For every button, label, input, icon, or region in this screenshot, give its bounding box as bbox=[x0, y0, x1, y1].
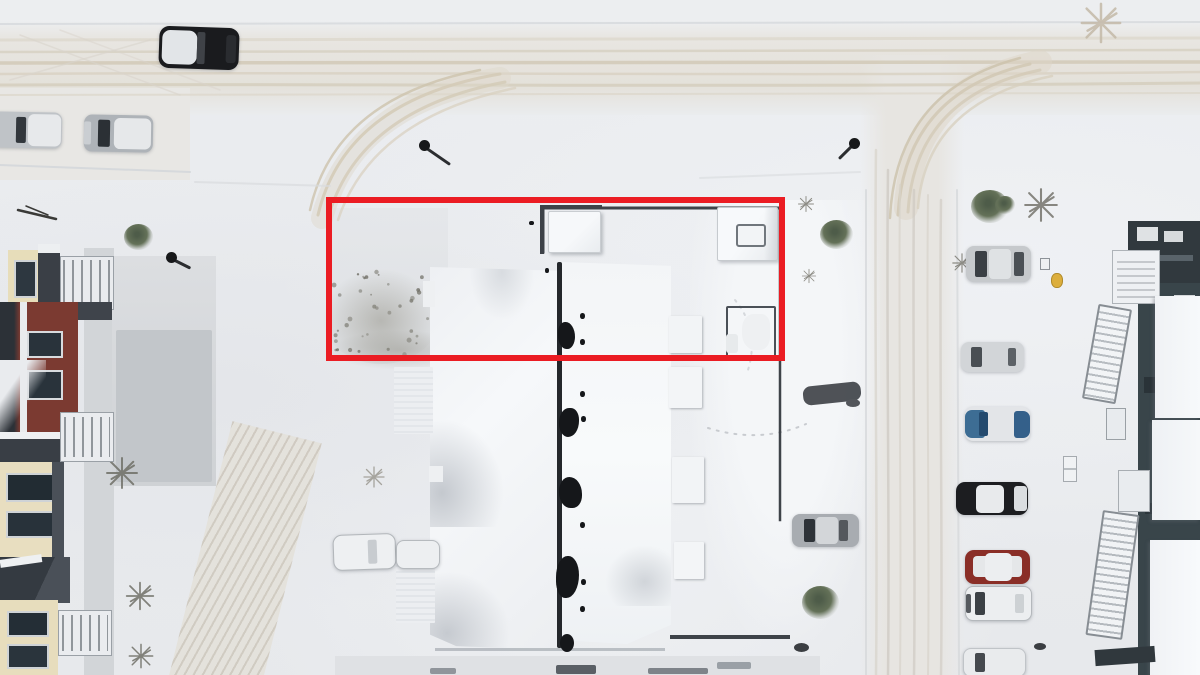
lh-snow-roof-peak bbox=[0, 360, 46, 434]
roof-drift-shadow bbox=[430, 566, 515, 650]
roof-vent bbox=[580, 606, 585, 612]
car-snowcovered-1-detail bbox=[368, 539, 377, 563]
porch-roof-3 bbox=[672, 457, 704, 503]
porch-roof-4 bbox=[674, 542, 704, 579]
car-parked-right-7 bbox=[963, 648, 1026, 675]
suv-dark-top-road bbox=[158, 26, 239, 71]
aerial-photo-scene bbox=[0, 0, 1200, 675]
car-parked-left-2-detail bbox=[98, 120, 111, 147]
porch-roof-2 bbox=[669, 367, 702, 408]
fire-hydrant bbox=[1051, 273, 1063, 288]
car-parked-right-4-black bbox=[956, 482, 1028, 515]
suv-dark-top-road-detail bbox=[162, 30, 198, 65]
bare-shrub bbox=[801, 268, 817, 284]
car-parked-right-6-white-detail bbox=[966, 594, 971, 612]
ridge-blotch bbox=[559, 477, 582, 508]
car-parked-left-2 bbox=[84, 114, 154, 152]
car-parked-right-4-black-detail bbox=[976, 485, 1003, 513]
car-parked-right-6-white bbox=[965, 586, 1032, 621]
car-parked-right-3-blue-detail bbox=[979, 412, 988, 435]
roof-vent bbox=[580, 522, 585, 528]
car-parked-right-3-blue-detail bbox=[1014, 411, 1030, 438]
car-parked-left-1-detail bbox=[28, 114, 61, 146]
property-outline-annotation bbox=[326, 197, 785, 361]
post-box bbox=[1040, 258, 1050, 270]
lh-wall-cream-3 bbox=[0, 600, 58, 675]
car-gray-mid-detail bbox=[804, 519, 815, 543]
roof-vent bbox=[581, 579, 586, 585]
lamp-head bbox=[849, 138, 860, 149]
car-parked-right-6-white-detail bbox=[975, 592, 985, 614]
lh-roof-diag bbox=[0, 557, 70, 603]
lh-roof-strip-1-detail bbox=[38, 244, 60, 253]
car-gray-mid-detail bbox=[816, 517, 837, 543]
rh-wall-top-corner-detail bbox=[1164, 231, 1183, 242]
eave-shadow-line bbox=[435, 648, 665, 651]
lh-balcony-2-detail bbox=[64, 417, 111, 457]
roof-vent bbox=[581, 416, 586, 422]
lh-wall-cream-1-detail bbox=[14, 260, 37, 298]
suv-parked-right-1-detail bbox=[1014, 252, 1024, 275]
car-parked-right-4-black-detail bbox=[1014, 486, 1027, 511]
rh-wall-top-corner-detail bbox=[1137, 227, 1159, 241]
conifer-tree bbox=[802, 586, 839, 619]
car-gray-mid bbox=[792, 514, 859, 547]
car-parked-left-1 bbox=[0, 111, 62, 148]
roof-drift-shadow bbox=[605, 545, 671, 606]
lh-wall-cream-2 bbox=[0, 462, 64, 557]
lamp-head bbox=[419, 140, 430, 151]
bare-shrub bbox=[362, 465, 386, 489]
car-parked-right-2-detail bbox=[971, 347, 982, 367]
white-posts bbox=[1063, 456, 1077, 482]
lh-roof-strip-1 bbox=[38, 244, 60, 308]
lh-wall-cream-2-detail bbox=[6, 511, 55, 538]
walkway-object bbox=[556, 665, 596, 674]
walkway-object bbox=[648, 668, 708, 674]
car-parked-right-3-blue bbox=[965, 407, 1030, 441]
conifer-tree bbox=[124, 224, 153, 250]
garage-roof-upper bbox=[394, 367, 433, 434]
car-parked-left-2-detail bbox=[84, 122, 91, 144]
suv-parked-right-1-detail bbox=[989, 249, 1011, 279]
bare-shrub bbox=[1022, 186, 1060, 224]
lh-roof-diag-detail bbox=[0, 554, 42, 568]
car-parked-right-5-red-detail bbox=[985, 553, 1012, 582]
lh-balcony-3-detail bbox=[62, 615, 109, 652]
rh-deck-upper bbox=[1112, 250, 1160, 304]
dark-blob bbox=[1034, 643, 1046, 650]
bare-shrub bbox=[127, 642, 155, 670]
lh-wall-cream-1 bbox=[8, 250, 42, 306]
suv-dark-top-road-detail bbox=[196, 32, 205, 64]
bare-shrub bbox=[124, 580, 156, 612]
lh-balcony-3 bbox=[58, 610, 112, 656]
lh-wall-cream-3-detail bbox=[7, 611, 49, 638]
car-gray-mid-detail bbox=[839, 520, 848, 541]
car-parked-left-2-detail bbox=[114, 118, 151, 150]
lh-wall-cream-3-detail bbox=[7, 644, 49, 669]
car-parked-left-1-detail bbox=[16, 117, 27, 143]
lh-wall-cream-2-detail bbox=[52, 462, 64, 557]
lh-brick-block-detail bbox=[27, 331, 64, 358]
ridge-blotch bbox=[560, 634, 574, 652]
rh-landing-small bbox=[1106, 408, 1126, 440]
rh-roof-2 bbox=[1152, 420, 1200, 520]
roof-vent bbox=[580, 391, 585, 397]
lh-wall-cream-2-detail bbox=[6, 473, 55, 502]
car-parked-right-5-red bbox=[965, 550, 1030, 584]
car-snowcovered-1 bbox=[332, 533, 396, 571]
walkway-object bbox=[717, 662, 751, 669]
dark-blob bbox=[794, 643, 809, 652]
conifer-tree bbox=[820, 220, 853, 249]
rh-roof-1 bbox=[1155, 296, 1200, 418]
roof-dormer-bump bbox=[429, 466, 443, 482]
walkway-object bbox=[430, 668, 456, 674]
car-parked-right-2 bbox=[961, 342, 1024, 372]
lh-balcony-2 bbox=[60, 412, 114, 462]
bare-shrub bbox=[797, 195, 815, 213]
car-parked-right-7-detail bbox=[975, 653, 985, 671]
lh-balcony-1-detail bbox=[63, 260, 111, 306]
suv-parked-right-1 bbox=[966, 246, 1031, 282]
conifer-tree bbox=[995, 196, 1015, 214]
car-snowcovered-2 bbox=[396, 540, 440, 569]
bare-tree-faint bbox=[1078, 0, 1124, 46]
car-parked-right-2-detail bbox=[1008, 348, 1016, 366]
rh-deck-mid bbox=[1118, 470, 1150, 512]
rh-roof-3 bbox=[1150, 540, 1200, 675]
dark-ground-dot bbox=[846, 399, 860, 407]
white-posts-detail bbox=[1064, 468, 1076, 470]
rh-deck-upper-detail bbox=[1117, 256, 1156, 298]
lamp-head bbox=[166, 252, 177, 263]
lh-porch-dark bbox=[78, 302, 112, 320]
suv-parked-right-1-detail bbox=[975, 251, 987, 277]
suv-dark-top-road-detail bbox=[226, 35, 237, 64]
car-parked-right-6-white-detail bbox=[1015, 594, 1024, 614]
